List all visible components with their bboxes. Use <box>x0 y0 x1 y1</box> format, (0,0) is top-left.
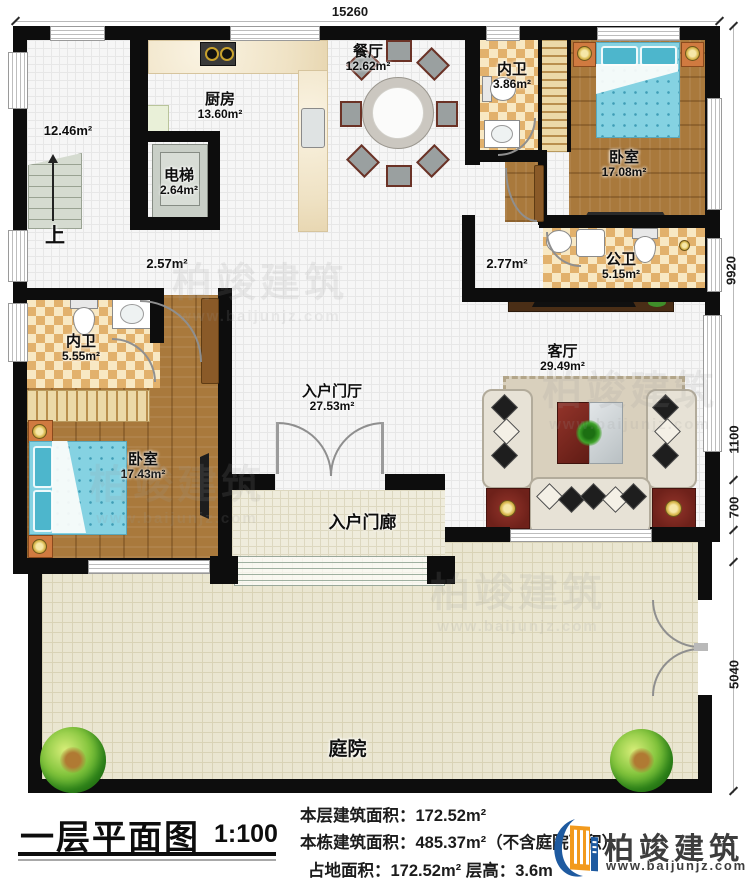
porch-steps <box>234 556 445 586</box>
window-publicbath-right <box>707 238 722 292</box>
table-lamp-icon <box>665 500 682 517</box>
wall-foyer-bottom-a <box>230 474 275 490</box>
plan-scale: 1:100 <box>214 820 278 849</box>
wall-bedroom-left-right <box>218 288 232 574</box>
dim-right-label-2: 1100 <box>727 410 742 470</box>
dim-line-top <box>15 21 720 22</box>
courtyard-gate-post <box>694 643 708 651</box>
wall-closet-a <box>538 40 542 152</box>
label-elevator: 电梯 2.64m² <box>148 168 210 196</box>
label-dining: 餐厅 12.62m² <box>318 44 418 72</box>
wall-courtyard-bottom <box>28 779 712 793</box>
tree-icon <box>610 729 673 792</box>
wall-stair-divider <box>130 40 148 230</box>
foyer-door-leaf <box>381 422 384 474</box>
window-stair-top <box>50 26 105 41</box>
wall-elevator-top <box>148 131 210 142</box>
foyer-door-leaf <box>276 422 279 474</box>
window-left-b <box>8 230 28 282</box>
kitchen-sink-icon <box>301 108 325 148</box>
staircase <box>28 153 82 229</box>
dim-tick <box>715 16 724 25</box>
dining-chair <box>340 101 362 127</box>
wall-courtyard-right-b <box>698 695 712 793</box>
label-bedroom-top: 卧室 17.08m² <box>583 150 665 178</box>
table-plant-icon <box>576 420 602 446</box>
label-hall-left-area: 2.57m² <box>130 257 204 271</box>
brand-logo-icon <box>550 816 600 880</box>
title-underline-thin <box>18 859 276 861</box>
wall-dining-bath <box>465 28 480 165</box>
table-lamp-icon <box>499 500 516 517</box>
wall-bedroom-top-bottom <box>539 215 705 228</box>
kitchen-counter-top <box>148 40 328 74</box>
window-left-c <box>8 303 28 362</box>
ceiling-lamp-icon <box>679 240 690 251</box>
bedroom-left-closet <box>27 390 150 422</box>
table-lamp-icon <box>577 46 592 61</box>
window-bedroom-top-right <box>707 98 722 210</box>
dim-tick <box>729 786 738 795</box>
window-bedroom-left-bottom <box>88 560 210 574</box>
wall-porch-stub-left <box>210 556 238 584</box>
stairs-arrow-icon <box>52 163 54 221</box>
stove-burner-icon <box>220 47 234 61</box>
window-kitchen-top <box>230 26 320 41</box>
area-line-3: 占地面积：172.52m² 层高：3.6m <box>308 857 553 881</box>
wall-porch-stub-right <box>427 556 455 584</box>
kitchen-counter-right <box>298 70 328 232</box>
bedroom-left-door-leaf <box>201 298 219 384</box>
tree-icon <box>40 727 106 793</box>
label-living: 客厅 29.49m² <box>505 344 620 372</box>
dining-chair <box>386 165 412 187</box>
wall-closet-b <box>567 40 571 152</box>
label-public-bath: 公卫 5.15m² <box>582 252 660 280</box>
stove-burner-icon <box>205 47 219 61</box>
label-hall-right-area: 2.77m² <box>470 257 544 271</box>
dining-chair <box>436 101 458 127</box>
table-lamp-icon <box>32 539 47 554</box>
wall-tv-icon <box>200 453 209 519</box>
window-living-right <box>703 315 722 452</box>
wall-ensuite-left-top <box>27 288 162 300</box>
dim-right-label-4: 5040 <box>727 645 742 705</box>
wall-living-bottom-b <box>650 527 705 542</box>
pillow <box>33 490 53 532</box>
label-foyer: 入户门厅 27.53m² <box>272 384 392 412</box>
window-bedroom-top <box>597 27 680 41</box>
dim-right-label-3: 700 <box>727 478 742 538</box>
label-courtyard: 庭院 <box>295 740 400 760</box>
label-stairs-up: 上 <box>40 226 70 247</box>
stairs-arrow-head-icon <box>48 154 58 163</box>
pillow <box>33 446 53 488</box>
title-underline-thick <box>18 852 276 856</box>
label-bedroom-left: 卧室 17.43m² <box>98 452 188 480</box>
label-porch: 入户门廊 <box>290 514 435 532</box>
label-ensuite-left: 内卫 5.55m² <box>45 334 117 362</box>
floor-plan-canvas: 15260 9920 1100 700 5040 12.46m² 上 电梯 2.… <box>0 0 750 895</box>
label-stair-hall-area: 12.46m² <box>28 124 108 138</box>
brand-url: www.baijunjz.com <box>606 858 747 873</box>
wall-courtyard-right-a <box>698 542 712 600</box>
dim-top-label: 15260 <box>320 4 380 19</box>
wall-hall-top <box>130 217 220 230</box>
area-line-1: 本层建筑面积：172.52m² <box>300 802 486 826</box>
label-ensuite-top: 内卫 3.86m² <box>477 62 547 90</box>
table-lamp-icon <box>685 46 700 61</box>
wall-living-bottom-a <box>445 527 510 542</box>
wall-publicbath-bottom <box>462 288 705 302</box>
window-living-bottom <box>510 529 652 542</box>
dining-table-top <box>372 87 424 139</box>
window-left-a <box>8 52 28 109</box>
pillow <box>640 46 677 66</box>
table-lamp-icon <box>32 424 47 439</box>
pillow <box>601 46 638 66</box>
window-bath-top <box>486 26 520 41</box>
wall-foyer-bottom-b <box>385 474 445 490</box>
label-kitchen: 厨房 13.60m² <box>165 92 275 120</box>
dim-right-label-1: 9920 <box>724 241 739 301</box>
